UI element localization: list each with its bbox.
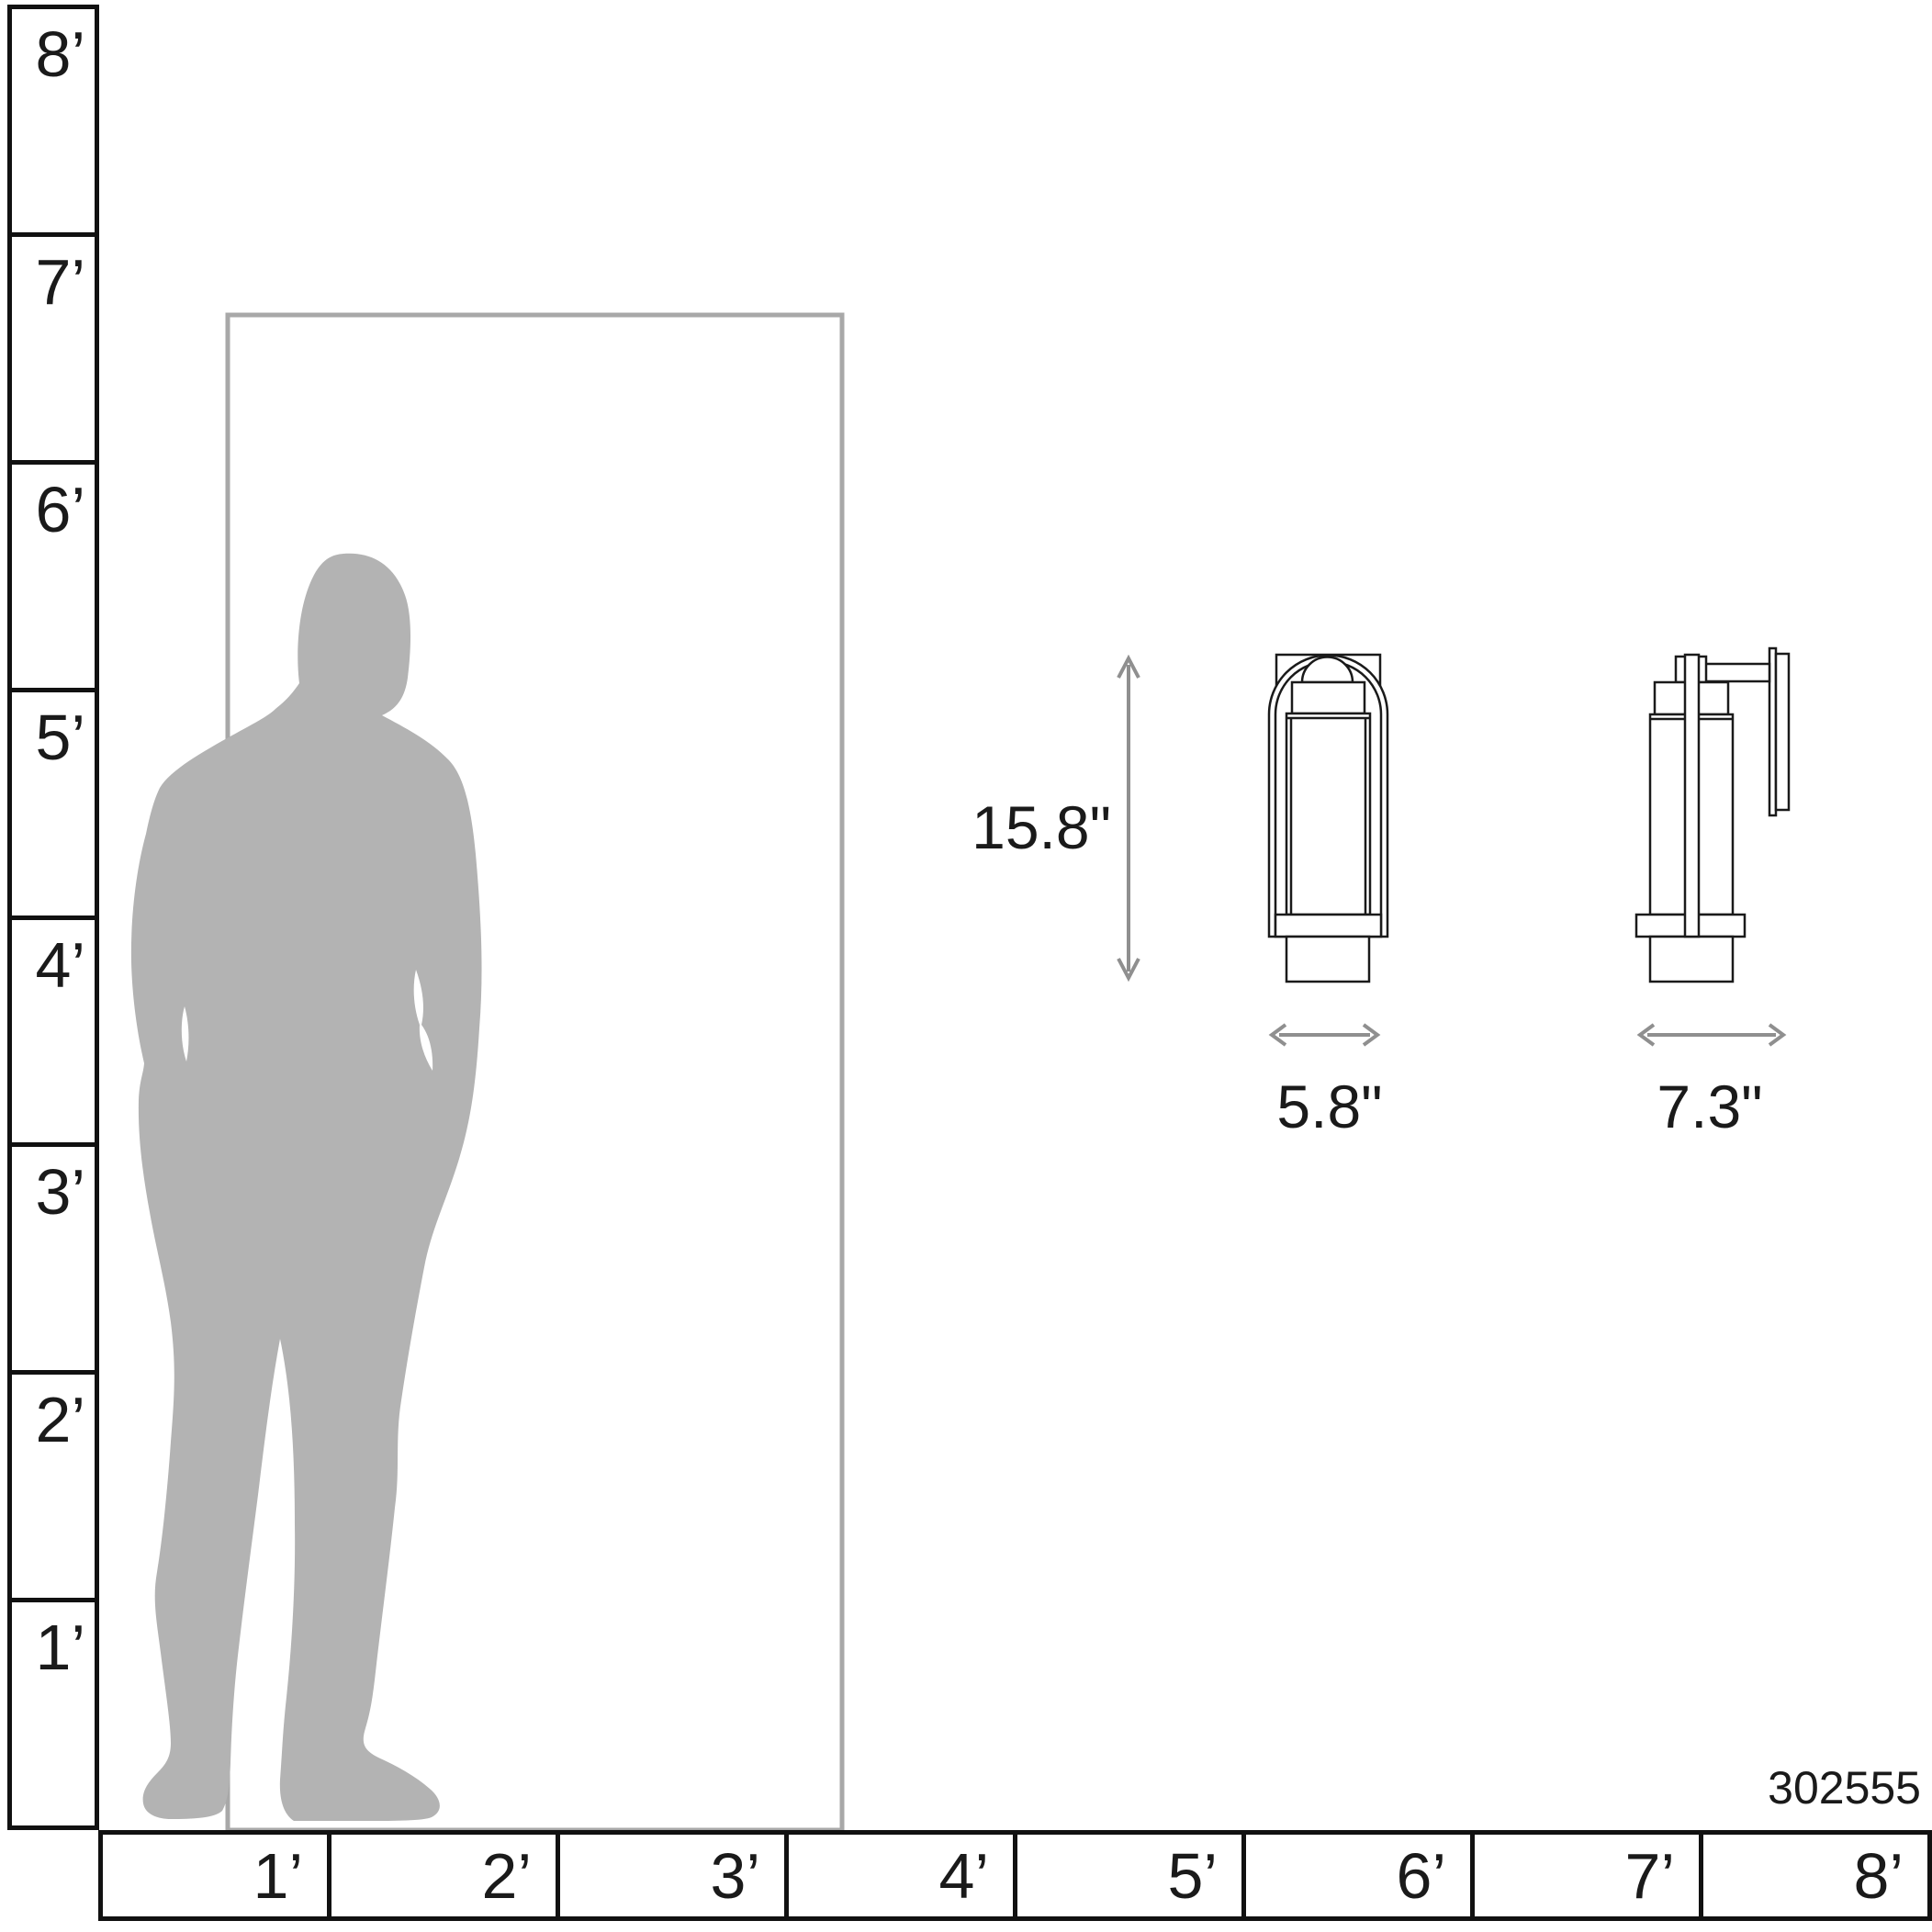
horizontal-ruler-cell: 3’ (560, 1835, 789, 1916)
side-mounting-arm (1699, 664, 1769, 681)
side-center-rod (1685, 655, 1699, 937)
ruler-label-6ft: 6’ (1397, 1844, 1446, 1908)
horizontal-ruler-cell: 6’ (1246, 1835, 1475, 1916)
product-number: 302555 (1653, 1765, 1921, 1811)
vertical-ruler-cell: 4’ (12, 920, 95, 1148)
width-dimension-label: 5.8" (1238, 1076, 1421, 1137)
depth-dimension-label: 7.3" (1618, 1076, 1802, 1137)
ruler-label-8ft: 8’ (36, 22, 85, 86)
ruler-label-5ft: 5’ (36, 705, 85, 769)
horizontal-ruler-cell: 2’ (331, 1835, 560, 1916)
horizontal-ruler: 1’ 2’ 3’ 4’ 5’ 6’ 7’ 8’ (98, 1830, 1932, 1921)
ruler-label-2ft: 2’ (482, 1844, 532, 1908)
vertical-ruler-cell: 3’ (12, 1147, 95, 1375)
vertical-ruler-cell: 6’ (12, 465, 95, 692)
horizontal-ruler-cell: 1’ (103, 1835, 331, 1916)
ruler-label-4ft: 4’ (939, 1844, 989, 1908)
horizontal-ruler-cell: 4’ (789, 1835, 1017, 1916)
person-silhouette-shape (131, 554, 482, 1821)
ruler-label-6ft: 6’ (36, 477, 85, 542)
ruler-label-7ft: 7’ (1625, 1844, 1675, 1908)
vertical-ruler-cell: 8’ (12, 9, 95, 237)
vertical-ruler-cell: 7’ (12, 237, 95, 465)
ruler-label-8ft: 8’ (1854, 1844, 1904, 1908)
ruler-label-1ft: 1’ (253, 1844, 303, 1908)
diagram-canvas (0, 0, 1932, 1932)
ruler-label-2ft: 2’ (36, 1387, 85, 1452)
front-base-block (1286, 937, 1369, 982)
horizontal-ruler-cell: 7’ (1475, 1835, 1703, 1916)
ruler-label-3ft: 3’ (36, 1160, 85, 1224)
height-dimension-label: 15.8" (937, 797, 1111, 858)
side-base-block (1650, 937, 1733, 982)
horizontal-ruler-cell: 8’ (1703, 1835, 1927, 1916)
sconce-front-view (1269, 655, 1387, 982)
horizontal-ruler-cell: 5’ (1017, 1835, 1246, 1916)
ruler-label-4ft: 4’ (36, 933, 85, 997)
ruler-label-7ft: 7’ (36, 250, 85, 314)
vertical-ruler-cell: 1’ (12, 1602, 95, 1825)
vertical-ruler-cell: 5’ (12, 692, 95, 920)
front-socket-housing (1292, 682, 1365, 713)
vertical-ruler-cell: 2’ (12, 1375, 95, 1602)
ruler-label-1ft: 1’ (36, 1615, 85, 1679)
ruler-label-5ft: 5’ (1168, 1844, 1218, 1908)
vertical-ruler: 8’ 7’ 6’ 5’ 4’ 3’ 2’ 1’ (7, 5, 99, 1830)
sconce-side-view (1636, 648, 1789, 982)
person-silhouette (131, 554, 482, 1821)
side-wall-plate (1776, 654, 1789, 810)
front-glass-cylinder (1286, 713, 1370, 915)
front-bottom-band (1275, 915, 1381, 937)
ruler-label-3ft: 3’ (711, 1844, 760, 1908)
